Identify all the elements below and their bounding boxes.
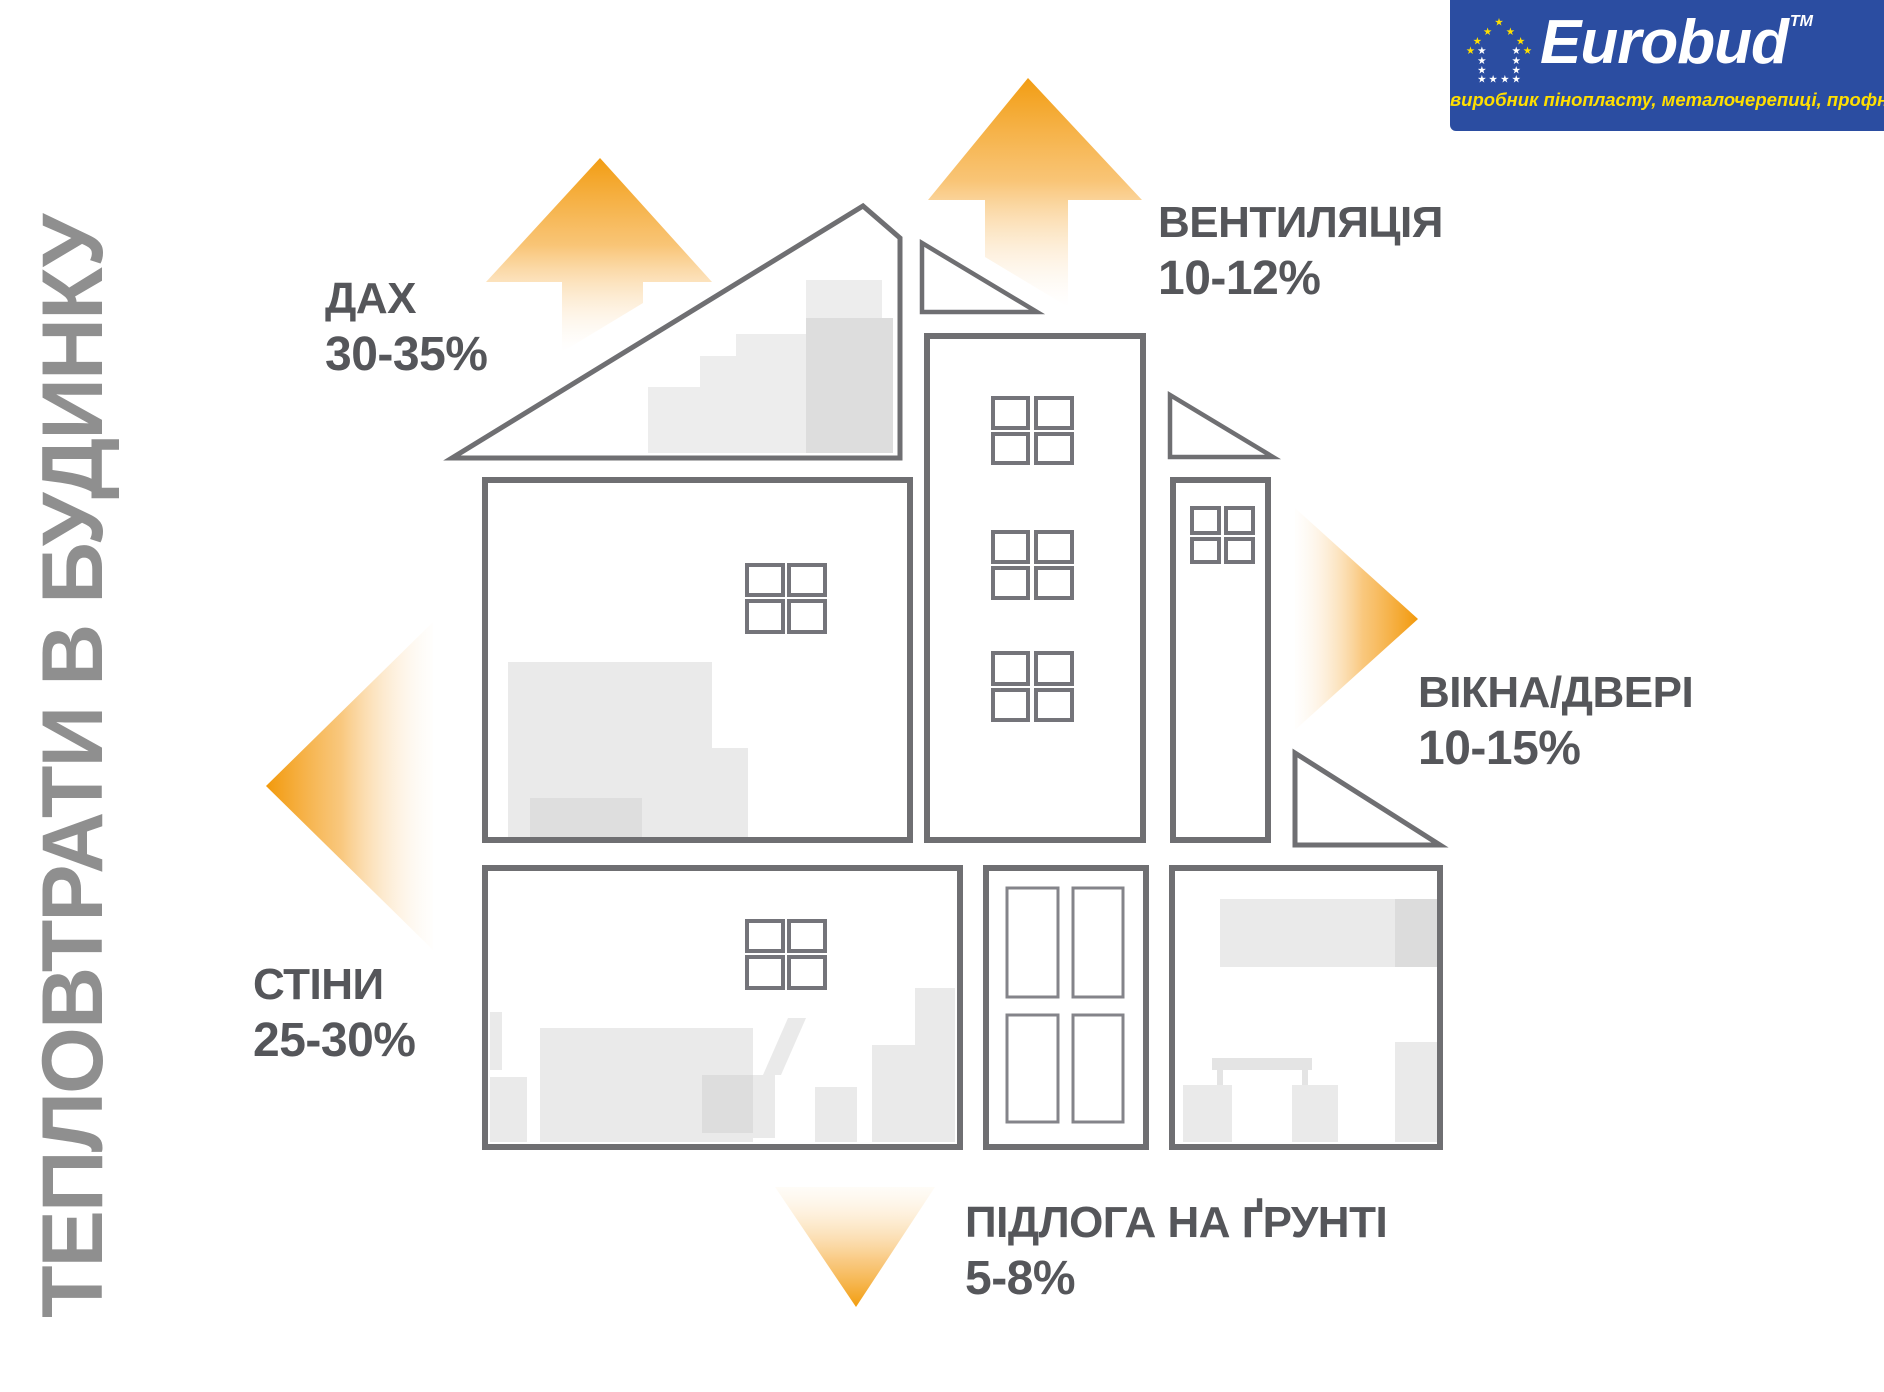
label-roof-value: 30-35% xyxy=(325,326,487,384)
heat-arrow-roof-icon xyxy=(486,158,712,352)
sofa-silhouette xyxy=(508,662,748,838)
window-tower-bottom xyxy=(993,653,1072,720)
page-title: ТЕПЛОВТРАТИ В БУДИНКУ xyxy=(30,118,116,1318)
svg-text:★: ★ xyxy=(1523,45,1532,57)
label-walls-name: СТІНИ xyxy=(253,958,415,1012)
window-second-floor xyxy=(747,565,825,632)
svg-text:★: ★ xyxy=(1512,73,1521,85)
dormer-middle-outline xyxy=(1170,395,1273,457)
ground-floor-furniture-silhouette xyxy=(490,988,955,1142)
window-ground-floor xyxy=(747,921,825,988)
eu-stars-house-icon: ★ ★★ ★★ ★★ ★★ ★★ ★★ ★★ ★★ xyxy=(1466,14,1532,86)
heat-arrow-windows-icon xyxy=(1295,508,1418,730)
label-windows-doors-name: ВІКНА/ДВЕРІ xyxy=(1418,666,1693,720)
eurobud-logo: ★ ★★ ★★ ★★ ★★ ★★ ★★ ★★ ★★ EurobudTM виро… xyxy=(1450,0,1884,131)
svg-text:★: ★ xyxy=(1506,26,1515,38)
eurobud-tagline: виробник пінопласту, металочерепиці, про… xyxy=(1450,89,1884,111)
label-walls-value: 25-30% xyxy=(253,1012,415,1070)
window-tower-middle xyxy=(993,532,1072,598)
heat-arrow-walls-icon xyxy=(266,622,433,950)
eurobud-brand-text: Eurobud xyxy=(1540,8,1788,77)
window-right-tower xyxy=(1192,508,1253,562)
label-floor: ПІДЛОГА НА ҐРУНТІ 5-8% xyxy=(965,1196,1387,1308)
label-roof-name: ДАХ xyxy=(325,272,487,326)
eurobud-logo-row: ★ ★★ ★★ ★★ ★★ ★★ ★★ ★★ ★★ EurobudTM xyxy=(1450,0,1884,86)
door-panes xyxy=(1007,888,1123,1122)
label-windows-doors: ВІКНА/ДВЕРІ 10-15% xyxy=(1418,666,1693,778)
label-walls: СТІНИ 25-30% xyxy=(253,958,415,1070)
infographic-canvas: ТЕПЛОВТРАТИ В БУДИНКУ ДАХ 30-35% ВЕНТИЛЯ… xyxy=(0,0,1884,1392)
heat-arrow-floor-icon xyxy=(775,1187,935,1307)
eurobud-tm-mark: TM xyxy=(1790,13,1813,30)
label-floor-value: 5-8% xyxy=(965,1250,1387,1308)
svg-text:★: ★ xyxy=(1500,73,1509,85)
window-tower-top xyxy=(993,398,1072,463)
svg-text:★: ★ xyxy=(1494,16,1503,28)
kitchen-silhouette xyxy=(1183,899,1437,1142)
attic-stairs-silhouette xyxy=(648,280,893,453)
svg-text:★: ★ xyxy=(1477,73,1486,85)
svg-text:★: ★ xyxy=(1489,73,1498,85)
eurobud-brand-wrap: EurobudTM xyxy=(1540,12,1811,74)
label-floor-name: ПІДЛОГА НА ҐРУНТІ xyxy=(965,1196,1387,1250)
label-roof: ДАХ 30-35% xyxy=(325,272,487,384)
label-windows-doors-value: 10-15% xyxy=(1418,720,1693,778)
svg-text:★: ★ xyxy=(1466,45,1475,57)
heat-arrow-ventilation-icon xyxy=(928,78,1142,307)
label-ventilation-name: ВЕНТИЛЯЦІЯ xyxy=(1158,196,1443,250)
svg-text:★: ★ xyxy=(1483,26,1492,38)
label-ventilation-value: 10-12% xyxy=(1158,250,1443,308)
label-ventilation: ВЕНТИЛЯЦІЯ 10-12% xyxy=(1158,196,1443,308)
